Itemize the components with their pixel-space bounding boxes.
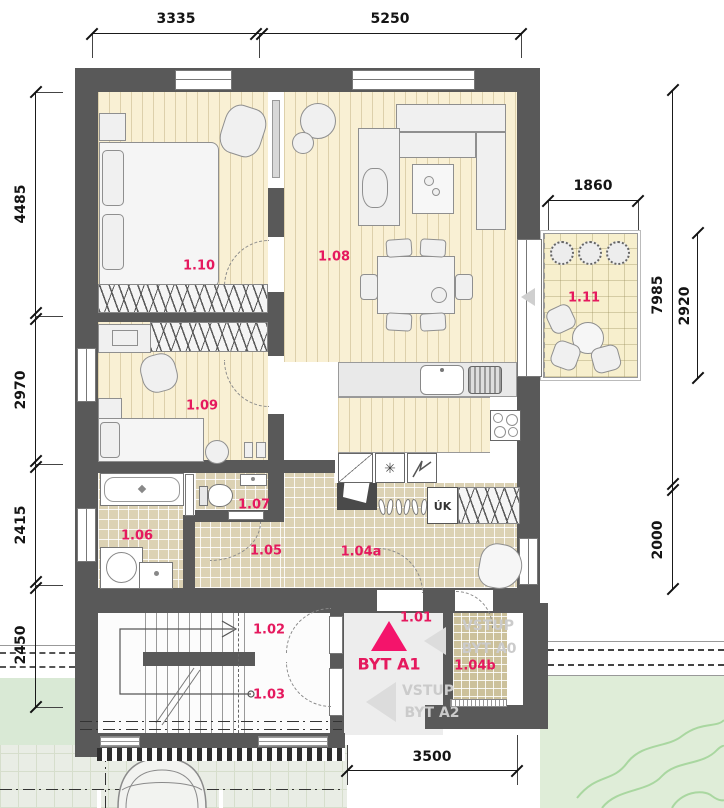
tick — [692, 372, 705, 385]
stair-walkline — [98, 613, 330, 733]
washer-drum-icon — [106, 552, 137, 583]
kitchen-dishrack-icon — [468, 366, 502, 394]
sofa-back — [396, 104, 506, 132]
entry-a2-line1: VSTUP — [402, 683, 454, 699]
dim-ext-bottom-1 — [347, 745, 348, 785]
coffee-table-decor-2 — [432, 188, 440, 196]
tick — [667, 583, 680, 596]
dim-line-left — [35, 92, 36, 707]
window-108-icon — [352, 70, 475, 90]
dim-ext-1860-1 — [548, 200, 549, 230]
pillow-109 — [100, 422, 120, 458]
dim-ext-left-5 — [35, 707, 63, 708]
room-label-102: 1.02 — [253, 623, 285, 638]
entry-a2-line2: BYT A2 — [404, 705, 459, 721]
globe-109 — [205, 440, 229, 464]
wall-106-107 — [183, 515, 195, 590]
apartment-title: BYT A1 — [358, 655, 421, 674]
door-leaf-106-icon — [185, 474, 194, 516]
sliding-door-110-icon — [272, 100, 280, 178]
room-label-106: 1.06 — [121, 529, 153, 544]
dim-line-1860 — [548, 200, 638, 201]
dim-ext-1860-2 — [638, 200, 639, 230]
apartment-marker-icon — [371, 621, 407, 651]
dim-left-3: 2415 — [13, 506, 29, 545]
entry-a0-line2: BYT A0 — [461, 641, 516, 657]
side-chair-108 — [362, 168, 388, 208]
dim-terrace-width: 1860 — [574, 178, 613, 194]
dim-left-4: 2450 — [13, 626, 29, 665]
dim-line-top — [92, 33, 521, 34]
dim-terrace-height: 2920 — [677, 287, 693, 326]
cabinet-diagonal-icon — [338, 453, 373, 483]
shrub-3-icon — [606, 241, 630, 265]
shoes-icon — [379, 499, 427, 521]
kitchen-faucet-icon — [440, 368, 444, 372]
room-label-103: 1.03 — [253, 688, 285, 703]
dining-chair-left — [360, 274, 378, 300]
room-label-110: 1.10 — [183, 259, 215, 274]
sofa-right-arm — [476, 132, 506, 230]
door-gap-110 — [268, 237, 284, 292]
burner-3 — [494, 426, 506, 438]
wall-right-upper — [517, 68, 540, 240]
entry-a0-line1: VSTUP — [462, 618, 514, 634]
toy-109-1 — [244, 442, 253, 458]
dim-line-right-outer — [672, 90, 673, 589]
dim-ext-top-1 — [92, 33, 93, 58]
door-leaf-103-icon — [329, 668, 343, 716]
wall-left — [75, 68, 98, 743]
dim-ext-top-3 — [521, 33, 522, 58]
desk-monitor-109 — [112, 330, 138, 346]
shrub-2-icon — [578, 241, 602, 265]
entry-arrow-a0-icon — [424, 627, 446, 655]
pillow-110-1 — [102, 150, 124, 206]
burner-4 — [508, 427, 518, 437]
door-leaf-102-icon — [329, 616, 343, 654]
bath-sink-drain — [154, 571, 159, 576]
nightstand-110 — [99, 113, 126, 141]
terrace-edge-dashed — [543, 233, 545, 378]
doormat-1-icon — [100, 736, 140, 747]
wardrobe-109 — [150, 322, 268, 352]
door-gap-101-104a — [377, 590, 423, 611]
dim-line-bottom — [347, 770, 517, 771]
floor-plan: ✳ ÚK 1.10 1.08 1.09 — [0, 0, 724, 808]
tick — [667, 84, 680, 97]
shrub-1-icon — [550, 241, 574, 265]
terrace-sliding-door-icon — [517, 239, 542, 377]
tick — [692, 227, 705, 240]
window-109-icon — [77, 348, 96, 402]
burner-1 — [493, 413, 503, 423]
wardrobe-110 — [98, 284, 268, 313]
dim-left-2: 2970 — [13, 371, 29, 410]
window-106-icon — [77, 508, 96, 562]
room-label-111: 1.11 — [568, 291, 600, 306]
toy-109-2 — [256, 442, 266, 458]
entry-arrow-a2-icon — [366, 682, 396, 722]
dim-bottom: 3500 — [413, 749, 452, 765]
dining-chair-bottom-2 — [420, 312, 447, 331]
dim-top-right: 5250 — [371, 11, 410, 27]
dim-left-1: 4485 — [13, 185, 29, 224]
room-label-109: 1.09 — [186, 399, 218, 414]
dining-chair-top-2 — [420, 238, 447, 257]
room-label-104b: 1.04b — [454, 659, 495, 674]
left-walkway-dash-1 — [0, 652, 75, 654]
table-plate-icon — [431, 287, 447, 303]
left-grass-strip — [0, 678, 75, 745]
pillow-110-2 — [102, 214, 124, 270]
dining-table — [377, 256, 455, 314]
parking-mark-1 — [97, 790, 101, 808]
lawn-contours — [542, 688, 724, 808]
burner-2 — [506, 414, 518, 426]
coffee-table-decor-1 — [424, 176, 434, 186]
window-110-icon — [175, 70, 232, 90]
room-label-104a: 1.04a — [341, 545, 382, 560]
fridge-icon — [407, 453, 437, 483]
right-walkway-dash-1 — [548, 649, 724, 651]
left-walkway — [0, 645, 75, 678]
room-label-105: 1.05 — [250, 544, 282, 559]
sofa-seat — [396, 132, 476, 158]
stair-dashed-divider — [238, 613, 239, 733]
doormat-2-icon — [258, 736, 328, 747]
dim-top-left: 3335 — [157, 11, 196, 27]
right-walkway-dash-2 — [548, 664, 724, 666]
dim-ext-bottom-2 — [517, 735, 518, 785]
kitchen-counter — [338, 397, 490, 453]
terrace-door-arrow-icon — [521, 288, 535, 306]
dining-chair-bottom-1 — [386, 312, 413, 331]
drain-grate-icon — [97, 748, 345, 761]
plant-108-small — [292, 132, 314, 154]
dim-ext-left-1 — [35, 92, 63, 93]
door-gap-109 — [268, 356, 284, 414]
dim-right-lower: 2000 — [650, 521, 666, 560]
dim-line-right-inner — [697, 233, 698, 378]
dining-chair-top-1 — [385, 238, 412, 258]
left-walkway-dash-2 — [0, 666, 75, 668]
room-label-107: 1.07 — [238, 498, 270, 513]
freezer-icon: ✳ — [375, 453, 405, 483]
overhang-line-1 — [80, 721, 342, 722]
right-walkway — [548, 641, 724, 676]
wardrobe-104a — [458, 487, 520, 524]
overhang-line-2 — [80, 729, 342, 730]
heating-cabinet: ÚK — [427, 487, 458, 524]
toilet-bowl-icon — [208, 484, 233, 507]
wall-110-109 — [98, 312, 268, 322]
wc-sink-drain — [251, 477, 255, 481]
room-label-108: 1.08 — [318, 250, 350, 265]
toilet-tank-icon — [199, 486, 208, 506]
dining-chair-right — [455, 274, 473, 300]
dim-right-main: 7985 — [650, 276, 666, 315]
